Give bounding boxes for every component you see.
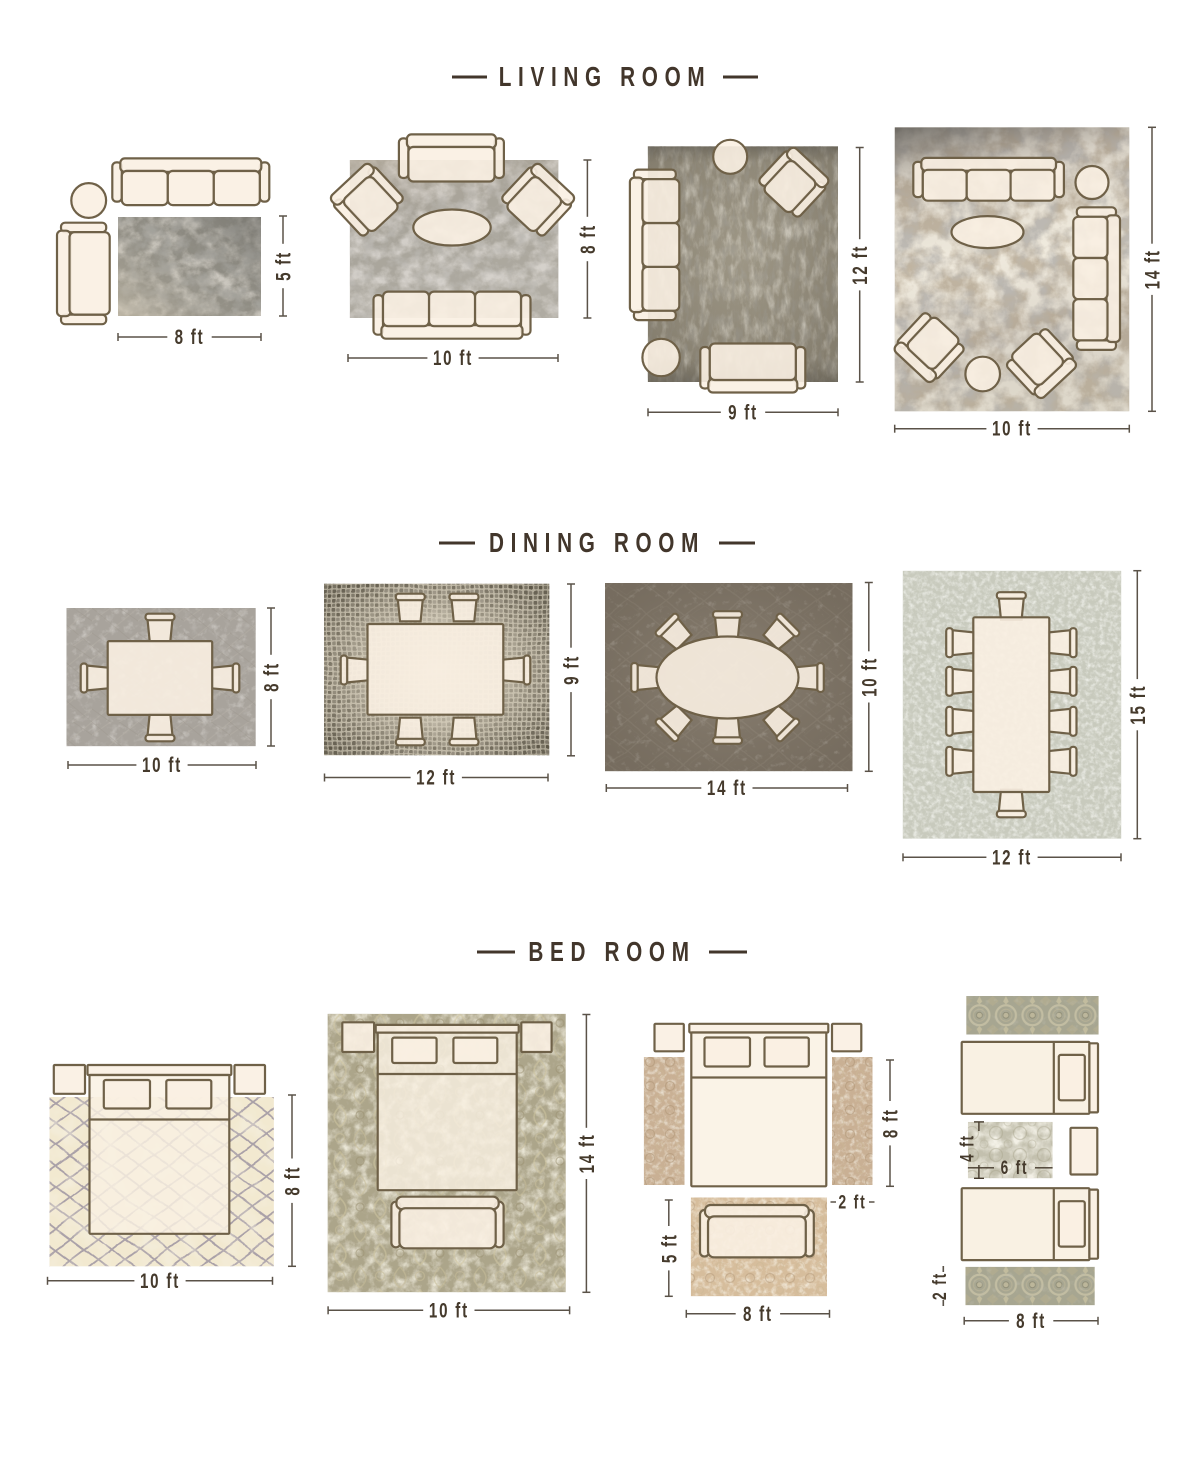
svg-text:14 ft: 14 ft bbox=[1140, 249, 1164, 289]
svg-text:2 ft: 2 ft bbox=[929, 1272, 951, 1300]
svg-text:2 ft: 2 ft bbox=[838, 1191, 866, 1213]
svg-text:8 ft: 8 ft bbox=[280, 1166, 304, 1196]
svg-text:10 ft: 10 ft bbox=[992, 416, 1032, 440]
svg-text:8 ft: 8 ft bbox=[1016, 1308, 1046, 1332]
svg-text:10 ft: 10 ft bbox=[433, 345, 473, 369]
svg-text:6 ft: 6 ft bbox=[1001, 1157, 1029, 1179]
svg-text:12 ft: 12 ft bbox=[848, 245, 872, 285]
svg-text:12 ft: 12 ft bbox=[416, 765, 456, 789]
svg-text:9 ft: 9 ft bbox=[728, 400, 758, 424]
svg-text:BED ROOM: BED ROOM bbox=[528, 937, 695, 968]
svg-text:8 ft: 8 ft bbox=[575, 224, 599, 254]
svg-text:8 ft: 8 ft bbox=[259, 662, 283, 692]
svg-text:8 ft: 8 ft bbox=[743, 1301, 773, 1325]
svg-text:5 ft: 5 ft bbox=[271, 251, 295, 281]
svg-text:14 ft: 14 ft bbox=[707, 775, 747, 799]
svg-text:15 ft: 15 ft bbox=[1125, 685, 1149, 725]
svg-text:12 ft: 12 ft bbox=[992, 845, 1032, 869]
svg-text:LIVING ROOM: LIVING ROOM bbox=[499, 62, 712, 93]
svg-text:DINING ROOM: DINING ROOM bbox=[489, 528, 705, 559]
svg-text:8 ft: 8 ft bbox=[878, 1108, 902, 1138]
svg-text:10 ft: 10 ft bbox=[142, 752, 182, 776]
svg-text:4 ft: 4 ft bbox=[956, 1134, 978, 1162]
svg-text:5 ft: 5 ft bbox=[657, 1233, 681, 1263]
svg-text:9 ft: 9 ft bbox=[559, 655, 583, 685]
svg-text:10 ft: 10 ft bbox=[429, 1298, 469, 1322]
svg-text:8 ft: 8 ft bbox=[175, 324, 205, 348]
svg-text:10 ft: 10 ft bbox=[857, 657, 881, 697]
svg-text:10 ft: 10 ft bbox=[140, 1268, 180, 1292]
svg-text:14 ft: 14 ft bbox=[574, 1133, 598, 1173]
